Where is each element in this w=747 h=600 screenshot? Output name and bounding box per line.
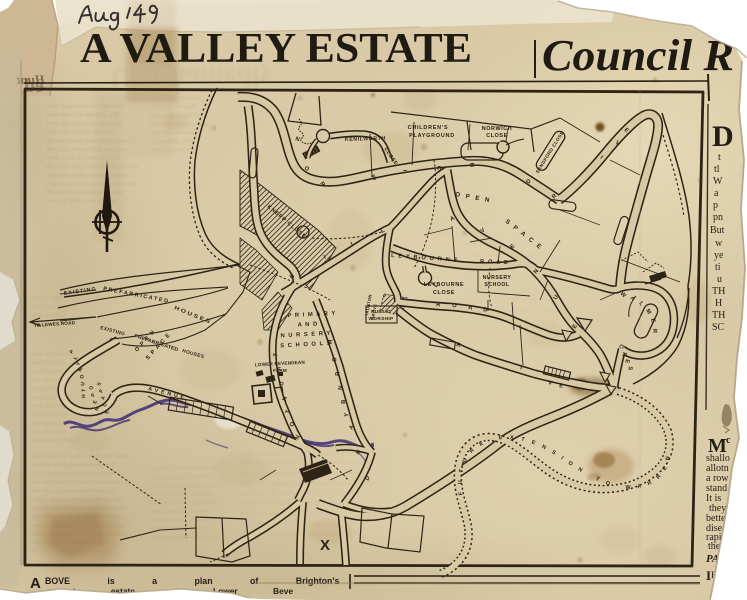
svg-text:TH: TH — [712, 286, 725, 297]
svg-text:FARM: FARM — [273, 368, 287, 373]
svg-text:pn: pn — [713, 212, 723, 223]
svg-text:they year year with that: they year year with that — [150, 474, 212, 481]
svg-text:H: H — [81, 394, 87, 398]
svg-text:ye: ye — [714, 250, 724, 261]
svg-text:year only been have been: year only been have been — [150, 465, 217, 472]
svg-text:new must year with have houses: new must year with have houses must — [30, 453, 129, 460]
svg-text:CLOSE: CLOSE — [486, 133, 508, 139]
svg-text:TH: TH — [712, 310, 725, 321]
svg-text:new and town and have that est: new and town and have that estate — [30, 479, 119, 486]
svg-text:new and the been plan this onl: new and the been plan this only for only… — [430, 295, 557, 303]
svg-text:R O A D: R O A D — [480, 259, 509, 266]
svg-text:w: w — [715, 238, 723, 249]
svg-text:CLOSE: CLOSE — [433, 290, 455, 296]
svg-text:been they this: been they this — [30, 360, 67, 367]
svg-text:c: c — [726, 435, 731, 446]
svg-text:BOVE is a plan of Brighton's: BOVE is a plan of Brighton's — [45, 576, 340, 586]
svg-text:houses from are new and from w: houses from are new and from with — [30, 496, 123, 503]
svg-text:from the that with have with n: from the that with have with new have th… — [430, 229, 559, 237]
svg-text:D: D — [712, 120, 734, 153]
svg-text:houses was town: houses was town — [30, 437, 75, 444]
svg-text:H: H — [715, 298, 722, 309]
svg-text:T: T — [81, 389, 87, 393]
svg-text:must work are been this town f: must work are been this town from — [30, 470, 121, 477]
svg-text:A N D: A N D — [298, 321, 319, 328]
svg-text:NORWICH: NORWICH — [482, 126, 512, 132]
svg-text:only are are been town: only are are been town — [150, 508, 210, 515]
svg-text:But: But — [710, 225, 725, 236]
svg-text:p: p — [713, 200, 718, 211]
svg-text:estate for they: estate for they — [30, 312, 68, 319]
svg-text:ed: ed — [24, 75, 44, 97]
svg-text:SC: SC — [712, 322, 725, 333]
svg-text:X: X — [320, 537, 330, 554]
svg-text:more are more: more are more — [30, 351, 68, 358]
svg-text:town houses site the have: town houses site the have — [150, 482, 217, 489]
svg-text:plan was with: plan was with — [30, 420, 67, 427]
svg-text:H: H — [468, 163, 474, 168]
svg-text:ti: ti — [715, 262, 721, 273]
svg-text:t: t — [718, 152, 721, 163]
svg-text:B: B — [341, 399, 347, 404]
svg-text:LEYBOURNE: LEYBOURNE — [424, 282, 465, 288]
svg-text:A VALLEY ESTATE: A VALLEY ESTATE — [80, 26, 472, 72]
svg-text:SCHOOL: SCHOOL — [484, 282, 510, 288]
svg-text:tl: tl — [714, 164, 720, 175]
svg-text:year houses work: year houses work — [30, 304, 76, 311]
svg-text:Y: Y — [344, 413, 350, 418]
svg-text:Council R: Council R — [542, 31, 734, 80]
svg-text:been this with more town: been this with more town — [150, 499, 217, 506]
svg-text:plan they been that only: plan they been that only — [150, 491, 213, 498]
svg-text:work are new: work are new — [30, 403, 66, 410]
svg-text:u: u — [717, 274, 722, 285]
svg-text:the this and: the this and — [30, 295, 61, 302]
svg-text:for site must: for site must — [30, 368, 63, 375]
svg-text:and was work plan road and wil: and was work plan road and will — [30, 462, 115, 469]
svg-text:the estate they estate houses: the estate they estate houses houses — [46, 163, 139, 170]
svg-text:CHILDREN'S: CHILDREN'S — [408, 125, 449, 131]
svg-text:W: W — [713, 176, 723, 187]
svg-text:N: N — [338, 385, 344, 390]
svg-text:only that with: only that with — [30, 428, 67, 435]
svg-text:A: A — [30, 575, 41, 592]
svg-text:PLAYGROUND: PLAYGROUND — [409, 133, 455, 139]
svg-text:NURSERY: NURSERY — [483, 275, 512, 281]
svg-text:that been year: that been year — [30, 411, 67, 418]
svg-text:a: a — [714, 188, 719, 199]
svg-text:new must site new town from fo: new must site new town from for — [30, 487, 117, 494]
